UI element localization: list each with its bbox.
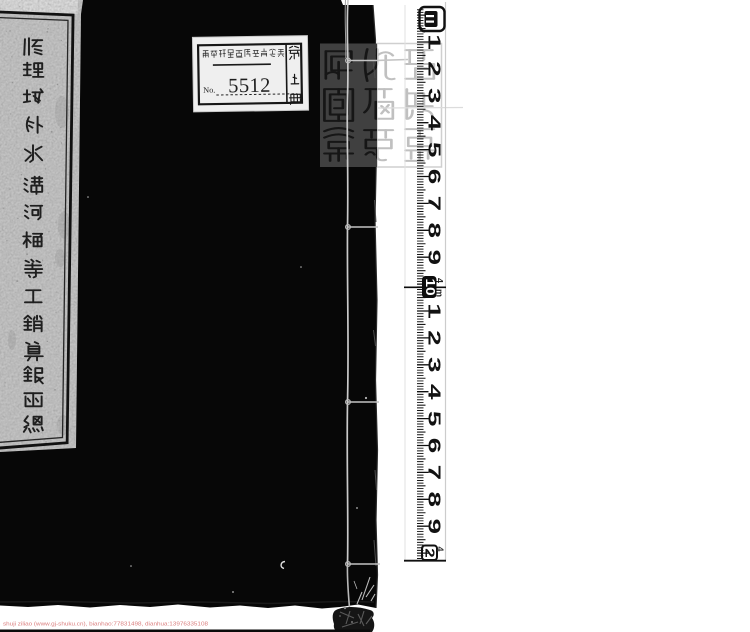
svg-text:8: 8 — [425, 223, 445, 239]
svg-text:9: 9 — [425, 518, 445, 534]
svg-text:7: 7 — [425, 465, 445, 481]
svg-text:7: 7 — [425, 196, 445, 212]
svg-text:shuji ziliao (www.gj-shuku.cn): shuji ziliao (www.gj-shuku.cn), bianhao:… — [3, 622, 208, 628]
svg-text:1: 1 — [425, 34, 445, 50]
svg-text:1: 1 — [425, 303, 445, 319]
svg-text:2: 2 — [422, 548, 435, 557]
svg-text:2: 2 — [425, 61, 445, 77]
svg-text:8: 8 — [425, 492, 445, 508]
svg-text:4: 4 — [435, 546, 445, 551]
svg-text:3: 3 — [425, 88, 445, 104]
svg-text:6: 6 — [425, 438, 445, 454]
svg-text:6: 6 — [425, 169, 445, 185]
svg-text:No.: No. — [203, 86, 215, 95]
svg-text:5: 5 — [425, 411, 445, 427]
svg-text:9: 9 — [425, 249, 445, 265]
svg-text:4: 4 — [425, 384, 445, 400]
svg-text:2: 2 — [425, 330, 445, 346]
svg-text:4: 4 — [435, 278, 445, 283]
svg-text:5: 5 — [425, 142, 445, 158]
svg-text:4: 4 — [425, 115, 445, 131]
svg-text:3: 3 — [425, 357, 445, 373]
svg-text:m: m — [435, 289, 445, 297]
